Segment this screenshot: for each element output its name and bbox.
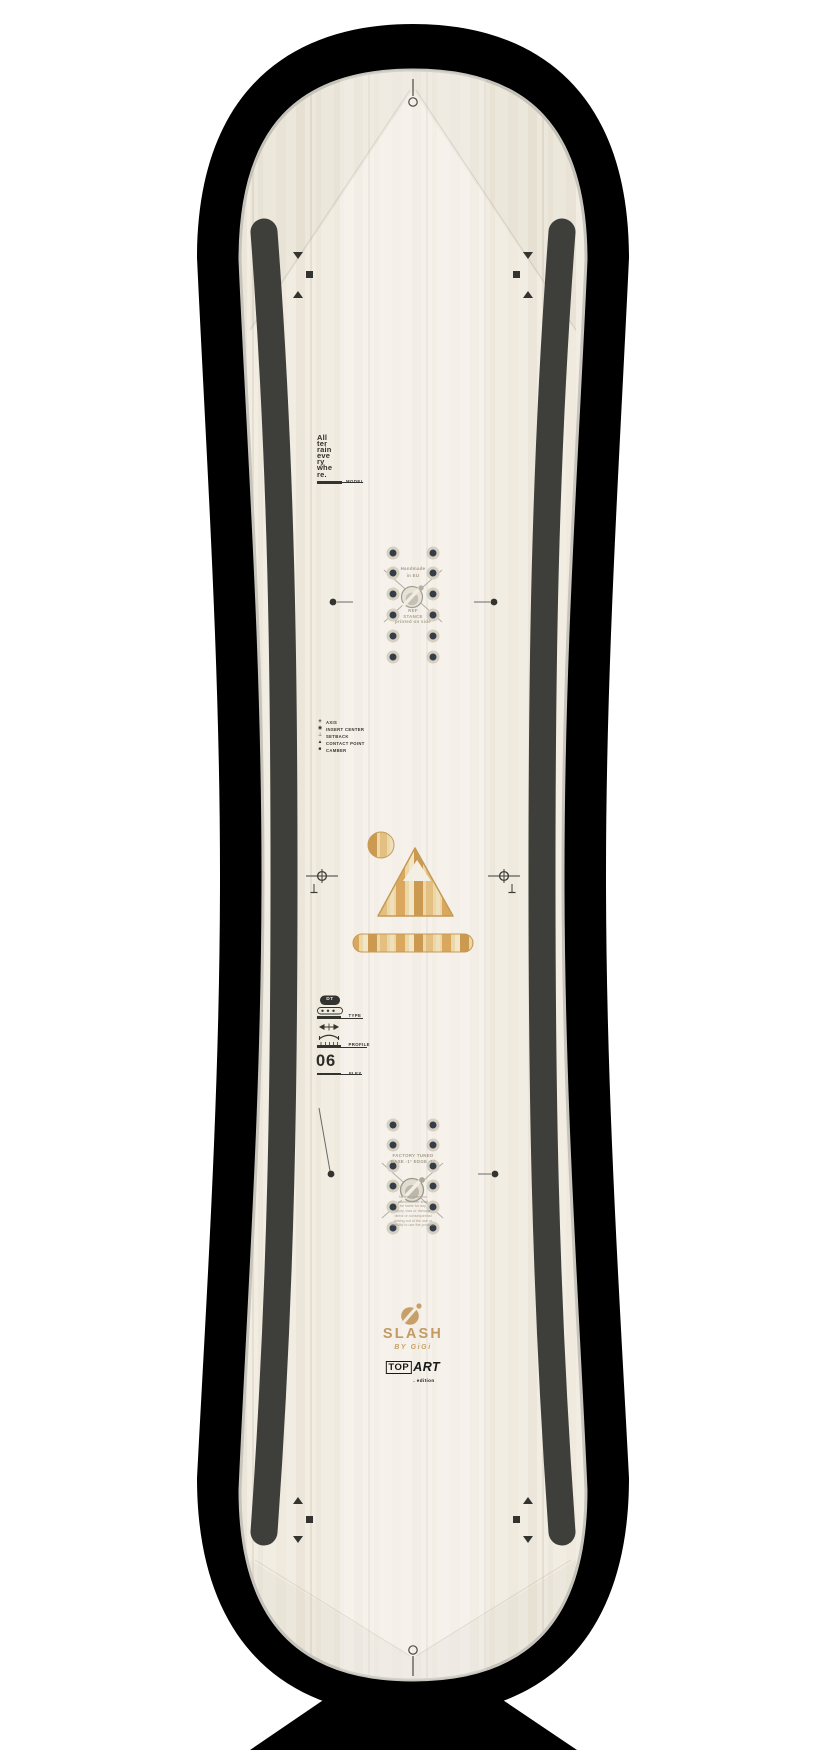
square-icon xyxy=(513,1516,520,1523)
legend-row: ◉ INSERT CENTER xyxy=(317,727,365,732)
legend-label: CAMBER xyxy=(326,748,346,753)
axis-icon: + xyxy=(317,720,323,725)
flex-label: FLEX xyxy=(349,1071,362,1076)
insert-center-icon: ◉ xyxy=(317,727,323,732)
profile-rule-bold xyxy=(317,1045,341,1047)
badge-art-text: ART xyxy=(413,1360,440,1374)
type-rule-bold xyxy=(317,1016,341,1018)
top-art-edition-badge: TOP ART xyxy=(386,1360,440,1374)
contact-point-icon: ▲ xyxy=(317,741,323,746)
profile-label: PROFILE xyxy=(349,1042,370,1047)
badge-edition-suffix: . edition xyxy=(413,1378,434,1383)
factory-tuned-text: FACTORY TUNED BASE -1° EDGE -1° xyxy=(391,1153,436,1165)
setback-icon: ⊥ xyxy=(317,734,323,739)
legend-label: INSERT CENTER xyxy=(326,727,364,732)
legend-row: ⊥ SETBACK xyxy=(317,734,365,739)
square-icon xyxy=(306,271,313,278)
model-stacked-text: All ter rain eve ry whe re. xyxy=(317,435,332,478)
disclaimer-text: Neither seller nor manufacturer shall be… xyxy=(391,1195,435,1228)
artwork-base-bar xyxy=(353,934,473,952)
flex-value: 06 xyxy=(316,1052,336,1071)
square-icon xyxy=(513,271,520,278)
slash-logo-watermark-icon xyxy=(402,585,424,607)
legend-row: ▲ CONTACT POINT xyxy=(317,741,365,746)
type-label: TYPE xyxy=(349,1013,362,1018)
artwork-sun xyxy=(368,832,394,858)
square-icon xyxy=(306,1516,313,1523)
legend-label: AXIS xyxy=(326,720,337,725)
display-stand xyxy=(250,1690,577,1750)
type-value: DT xyxy=(320,997,340,1002)
brand-byline: BY GiGi xyxy=(394,1344,432,1351)
legend-label: SETBACK xyxy=(326,734,349,739)
snowboard-product-image: All ter rain eve ry whe re. MODEL Handma… xyxy=(0,0,827,1754)
model-label: MODEL xyxy=(346,479,364,484)
ref-stance-text: REF STANCE printed on side xyxy=(395,608,431,625)
legend-row: ■ CAMBER xyxy=(317,748,365,753)
brand-name: SLASH xyxy=(383,1326,443,1342)
legend-label: CONTACT POINT xyxy=(326,741,365,746)
camber-icon: ■ xyxy=(317,748,323,753)
model-rule-bold xyxy=(317,481,342,484)
symbol-legend: + AXIS ◉ INSERT CENTER ⊥ SETBACK ▲ CONTA… xyxy=(317,720,365,754)
snowboard-artwork xyxy=(0,0,827,1754)
handmade-text: Handmade in EU xyxy=(401,565,426,579)
flex-rule-bold xyxy=(317,1073,341,1076)
badge-top-text: TOP xyxy=(386,1361,412,1374)
legend-row: + AXIS xyxy=(317,720,365,725)
